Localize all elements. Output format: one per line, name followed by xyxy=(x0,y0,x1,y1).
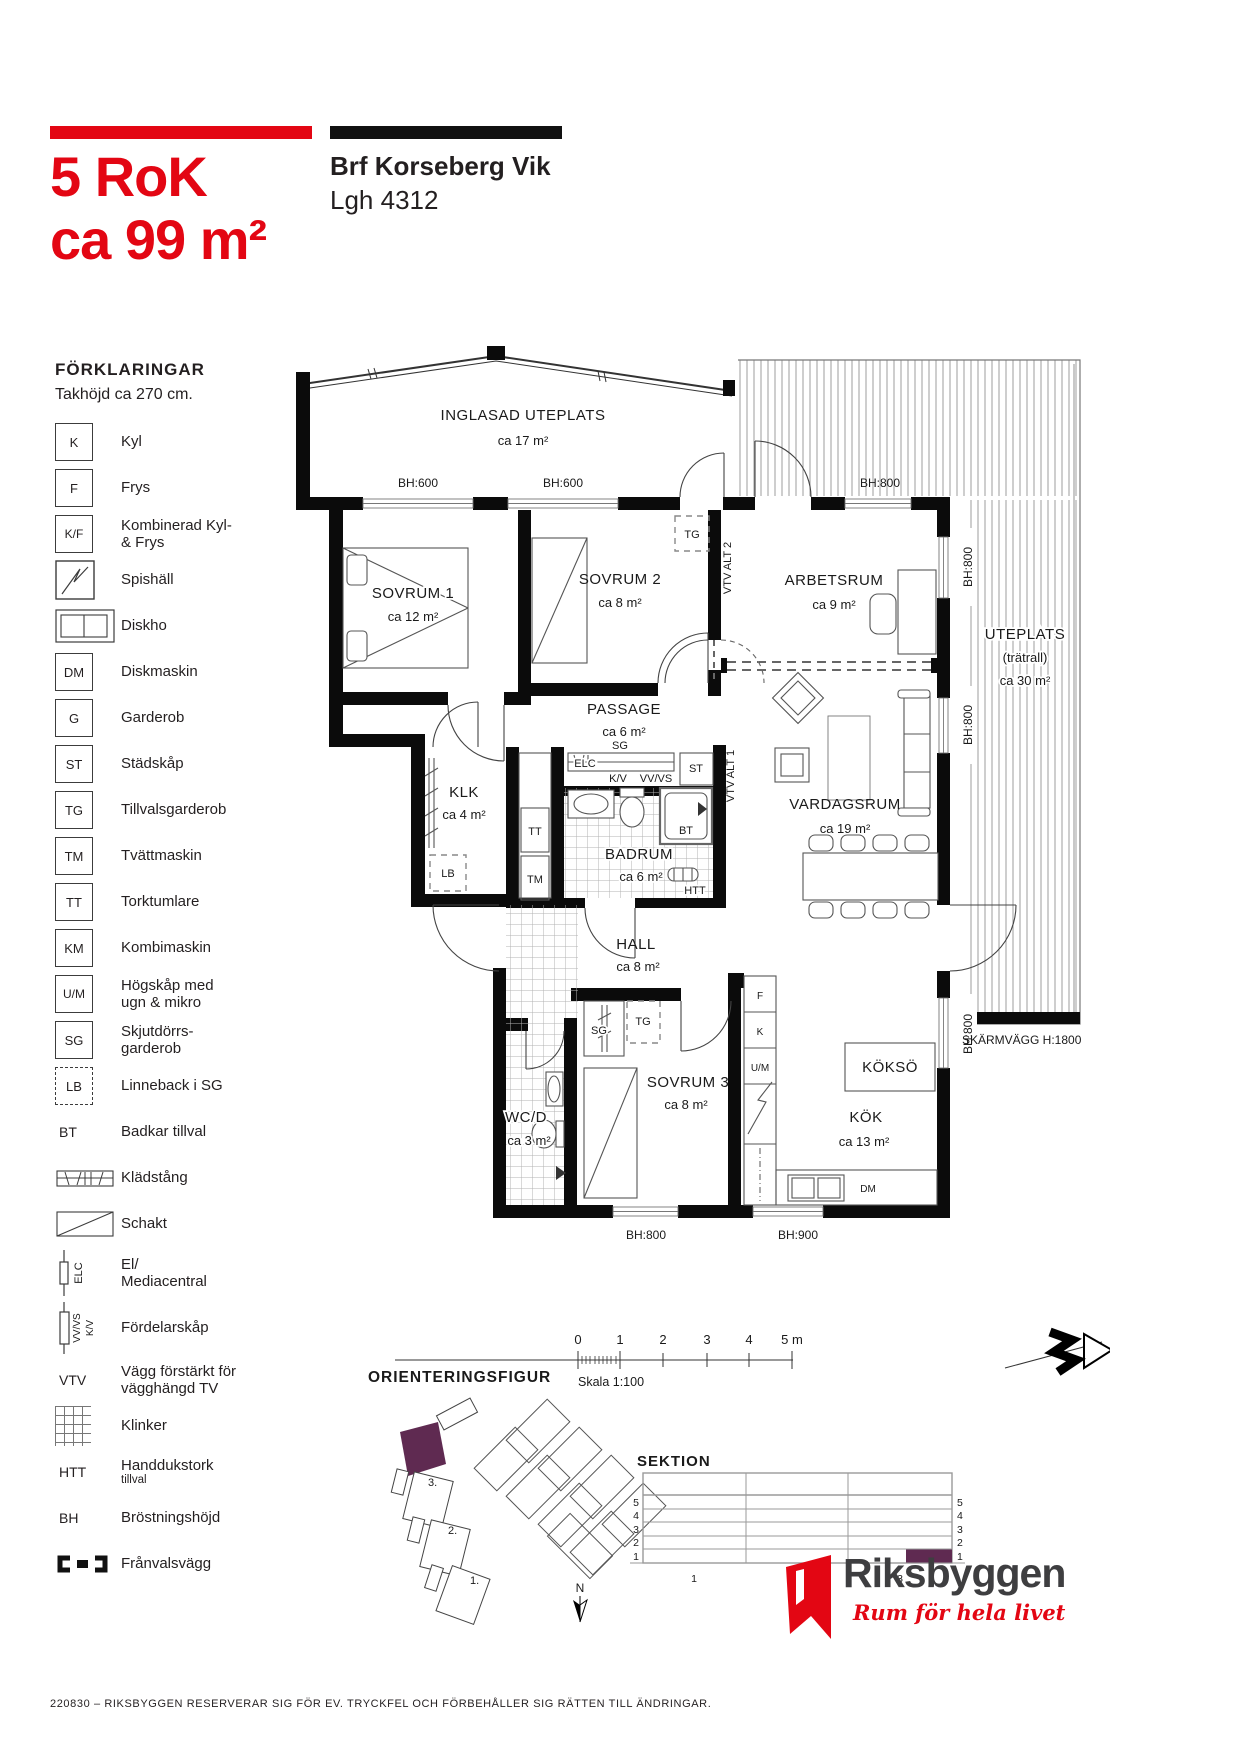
logo-name: Riksbyggen xyxy=(843,1553,1065,1594)
svg-text:ca 6 m²: ca 6 m² xyxy=(619,869,663,884)
bh600-label-1: BH:600 xyxy=(398,476,438,490)
km-symbol: KM xyxy=(55,929,93,967)
legend-subtitle: Takhöjd ca 270 cm. xyxy=(55,386,283,404)
room-sovrum1: SOVRUM 1 xyxy=(372,585,454,602)
legend-item-frys: F Frys xyxy=(55,466,283,510)
legend-item-elc: ELC El/ Mediacentral xyxy=(55,1248,283,1298)
svg-text:5 m: 5 m xyxy=(781,1332,803,1347)
riksbyggen-logo: Riksbyggen Rum för hela livet xyxy=(783,1553,1065,1641)
floor-plan: INGLASAD UTEPLATS ca 17 m² SOVRUM 1 ca 1… xyxy=(268,308,1098,1258)
window-bottom-2 xyxy=(753,1207,823,1216)
bh800-label-bottom: BH:800 xyxy=(626,1228,666,1242)
side-table xyxy=(775,748,809,782)
floorplan-page: 5 RoK ca 99 m² Brf Korseberg Vik Lgh 431… xyxy=(0,0,1240,1754)
tg-label-1: TG xyxy=(684,529,699,541)
kv-label: K/V xyxy=(609,773,627,785)
svg-text:3: 3 xyxy=(633,1524,639,1536)
room-sovrum3: SOVRUM 3 xyxy=(647,1074,729,1091)
f-label: F xyxy=(757,991,763,1002)
orientation-figure: ORIENTERINGSFIGUR 3. 2. 1. xyxy=(368,1369,666,1624)
svg-text:2: 2 xyxy=(957,1537,963,1549)
legend-item-vtv: VTV Vägg förstärkt för vägghängd TV xyxy=(55,1358,283,1402)
legend-item-schakt: Schakt xyxy=(55,1202,283,1246)
room-wcd: WC/D xyxy=(505,1109,547,1126)
bh600-label-2: BH:600 xyxy=(543,476,583,490)
vvvs-label: VV/VS xyxy=(640,773,672,785)
window-bh600-2 xyxy=(508,499,618,508)
legend-item-handdukstork: HTT Handdukstorktillval xyxy=(55,1450,283,1494)
legend-item-fordelarskap: VV/VS K/V Fördelarskåp xyxy=(55,1300,283,1356)
svg-text:2: 2 xyxy=(633,1537,639,1549)
kylfrys-symbol: K/F xyxy=(55,515,93,553)
svg-text:(trätrall): (trätrall) xyxy=(1003,650,1048,665)
lb-label: LB xyxy=(441,868,454,880)
k-label: K xyxy=(757,1027,764,1038)
room-inglasad-uteplats: INGLASAD UTEPLATS xyxy=(441,407,606,424)
legend-item-kylfrys: K/F Kombinerad Kyl- & Frys xyxy=(55,512,283,556)
disclaimer-text: 220830 – RIKSBYGGEN RESERVERAR SIG FÖR E… xyxy=(50,1698,711,1710)
svg-text:3.: 3. xyxy=(428,1477,437,1489)
sg-symbol: SG xyxy=(55,1021,93,1059)
sg-label-2: SG xyxy=(591,1025,607,1037)
legend-item-hogskap: U/M Högskåp med ugn & mikro xyxy=(55,972,283,1016)
legend-item-diskho: Diskho xyxy=(55,604,283,648)
tg-symbol: TG xyxy=(55,791,93,829)
vtv-symbol: VTV xyxy=(55,1372,115,1388)
legend: FÖRKLARINGAR Takhöjd ca 270 cm. K Kyl F … xyxy=(55,360,283,1588)
bh800-label-right1: BH:800 xyxy=(961,547,975,587)
svg-text:ca 17 m²: ca 17 m² xyxy=(498,433,549,448)
legend-item-tillvalsgarderob: TG Tillvalsgarderob xyxy=(55,788,283,832)
decor-diamond xyxy=(773,673,824,724)
svg-text:4: 4 xyxy=(957,1510,963,1522)
legend-item-torktumlare: TT Torktumlare xyxy=(55,880,283,924)
room-kok: KÖK xyxy=(849,1108,882,1126)
tiles-icon xyxy=(55,1406,91,1446)
bh800-label-right2: BH:800 xyxy=(961,705,975,745)
skarmvagg-wall xyxy=(962,1012,1080,1024)
sofa xyxy=(898,690,930,816)
svg-text:0: 0 xyxy=(574,1332,581,1347)
hob-icon xyxy=(55,560,95,600)
svg-text:1: 1 xyxy=(691,1573,697,1585)
project-header: Brf Korseberg Vik Lgh 4312 xyxy=(330,150,551,218)
window-bh600-1 xyxy=(363,499,473,508)
legend-item-brostningshojd: BH Bröstningshöjd xyxy=(55,1496,283,1540)
svg-text:ca 12 m²: ca 12 m² xyxy=(388,609,439,624)
svg-text:ELC: ELC xyxy=(73,1262,85,1283)
legend-item-badkar: BT Badkar tillval xyxy=(55,1110,283,1154)
clothes-rail-icon xyxy=(55,1162,115,1194)
room-hall: HALL xyxy=(616,936,656,953)
htt-symbol: HTT xyxy=(55,1464,115,1480)
room-klk: KLK xyxy=(449,784,479,801)
room-sovrum2: SOVRUM 2 xyxy=(579,571,661,588)
frys-symbol: F xyxy=(55,469,93,507)
svg-text:ca 3 m²: ca 3 m² xyxy=(507,1133,551,1148)
tm-label: TM xyxy=(527,874,543,886)
svg-text:4: 4 xyxy=(745,1332,752,1347)
bed-sovrum2 xyxy=(532,538,587,663)
window-right-3 xyxy=(939,998,948,1068)
svg-text:K/V: K/V xyxy=(85,1320,96,1336)
legend-item-kladstang: Klädstång xyxy=(55,1156,283,1200)
legend-item-skjutdorrsgarderob: SG Skjutdörrs- garderob xyxy=(55,1018,283,1062)
st-symbol: ST xyxy=(55,745,93,783)
room-arbetsrum: ARBETSRUM xyxy=(785,572,884,589)
svg-text:ca 8 m²: ca 8 m² xyxy=(598,595,642,610)
orientation-title: ORIENTERINGSFIGUR xyxy=(368,1369,551,1386)
bh-symbol: BH xyxy=(55,1510,115,1526)
um-label: U/M xyxy=(751,1063,769,1074)
svg-text:5: 5 xyxy=(957,1497,963,1509)
legend-item-klinker: Klinker xyxy=(55,1404,283,1448)
legend-item-kyl: K Kyl xyxy=(55,420,283,464)
apartment-size-title: 5 RoK ca 99 m² xyxy=(50,146,266,271)
tt-symbol: TT xyxy=(55,883,93,921)
window-right-1 xyxy=(939,537,948,598)
window-bottom-1 xyxy=(613,1207,678,1216)
shaft-icon xyxy=(55,1210,115,1238)
svg-text:3: 3 xyxy=(957,1524,963,1536)
elc-icon: ELC xyxy=(55,1248,99,1298)
black-accent-bar xyxy=(330,126,562,139)
elc-label: ELC xyxy=(574,758,595,770)
sink-icon xyxy=(55,607,115,645)
legend-item-diskmaskin: DM Diskmaskin xyxy=(55,650,283,694)
svg-text:ca 4 m²: ca 4 m² xyxy=(442,807,486,822)
room-uteplats: UTEPLATS xyxy=(985,626,1065,643)
sg-label-1: SG xyxy=(612,740,628,752)
skarmvagg-label: SKÄRMVÄGG H:1800 xyxy=(962,1033,1082,1047)
logo-tagline: Rum för hela livet xyxy=(853,1600,1065,1625)
bh800-label-top: BH:800 xyxy=(860,476,900,490)
bed-sovrum3 xyxy=(584,1068,637,1198)
site-north-icon: N xyxy=(573,1581,587,1622)
window-right-2 xyxy=(939,698,948,753)
highlighted-building xyxy=(400,1422,446,1476)
north-arrow-icon xyxy=(1005,1332,1110,1372)
section-title: SEKTION xyxy=(637,1453,711,1470)
st-label: ST xyxy=(689,763,703,775)
klk-clothes-rail xyxy=(425,758,438,848)
lb-symbol: LB xyxy=(55,1067,93,1105)
opt-out-wall xyxy=(721,658,937,673)
room-passage: PASSAGE xyxy=(587,701,661,718)
legend-item-stadskap: ST Städskåp xyxy=(55,742,283,786)
g-symbol: G xyxy=(55,699,93,737)
svg-text:4: 4 xyxy=(633,1510,639,1522)
room-vardagsrum: VARDAGSRUM xyxy=(789,796,900,813)
htt-label: HTT xyxy=(684,885,706,897)
red-accent-bar xyxy=(50,126,312,139)
svg-text:ca 13 m²: ca 13 m² xyxy=(839,1134,890,1149)
svg-text:ca 8 m²: ca 8 m² xyxy=(664,1097,708,1112)
vtv-alt1-label: VTV ALT 1 xyxy=(725,750,737,802)
rooms-count: 5 RoK xyxy=(50,146,266,209)
project-name: Brf Korseberg Vik xyxy=(330,150,551,184)
kyl-symbol: K xyxy=(55,423,93,461)
um-symbol: U/M xyxy=(55,975,93,1013)
svg-text:2.: 2. xyxy=(448,1525,457,1537)
legend-item-linneback: LB Linneback i SG xyxy=(55,1064,283,1108)
room-kokso: KÖKSÖ xyxy=(862,1058,918,1076)
bt-label: BT xyxy=(679,825,693,837)
tg-label-2: TG xyxy=(635,1016,650,1028)
svg-text:ca 8 m²: ca 8 m² xyxy=(616,959,660,974)
legend-item-garderob: G Garderob xyxy=(55,696,283,740)
legend-item-franvalsvagg: Frånvalsvägg xyxy=(55,1542,283,1586)
legend-item-tvattmaskin: TM Tvättmaskin xyxy=(55,834,283,878)
tm-symbol: TM xyxy=(55,837,93,875)
vtv-alt2-label: VTV ALT 2 xyxy=(722,542,734,594)
svg-text:N: N xyxy=(576,1581,585,1595)
dining-table xyxy=(803,835,938,918)
room-badrum: BADRUM xyxy=(605,846,673,863)
dm-symbol: DM xyxy=(55,653,93,691)
svg-text:3: 3 xyxy=(703,1332,710,1347)
svg-text:1.: 1. xyxy=(470,1575,479,1587)
svg-text:5: 5 xyxy=(633,1497,639,1509)
scale-text: Skala 1:100 xyxy=(578,1375,644,1389)
bed-sovrum1 xyxy=(343,548,468,668)
apartment-area: ca 99 m² xyxy=(50,209,266,272)
svg-text:2: 2 xyxy=(659,1332,666,1347)
svg-text:1: 1 xyxy=(616,1332,623,1347)
bh900-label: BH:900 xyxy=(778,1228,818,1242)
distribution-cabinet-icon: VV/VS K/V xyxy=(55,1300,107,1356)
opt-out-wall-icon xyxy=(55,1555,113,1573)
svg-text:1: 1 xyxy=(633,1551,639,1563)
svg-text:ca 6 m²: ca 6 m² xyxy=(602,724,646,739)
dm-label: DM xyxy=(860,1184,876,1195)
legend-title: FÖRKLARINGAR xyxy=(55,360,283,380)
media-bench xyxy=(828,716,870,800)
svg-text:ca 9 m²: ca 9 m² xyxy=(812,597,856,612)
window-bh800-top xyxy=(845,499,911,508)
riksbyggen-logo-mark xyxy=(783,1553,833,1641)
tt-label: TT xyxy=(528,826,542,838)
svg-text:ca 19 m²: ca 19 m² xyxy=(820,821,871,836)
svg-text:ca 30 m²: ca 30 m² xyxy=(1000,673,1051,688)
apartment-number: Lgh 4312 xyxy=(330,184,551,218)
bt-symbol: BT xyxy=(55,1124,115,1140)
legend-item-kombimaskin: KM Kombimaskin xyxy=(55,926,283,970)
svg-text:VV/VS: VV/VS xyxy=(72,1313,83,1343)
roof-glazing xyxy=(303,346,735,396)
legend-item-spishall: Spishäll xyxy=(55,558,283,602)
